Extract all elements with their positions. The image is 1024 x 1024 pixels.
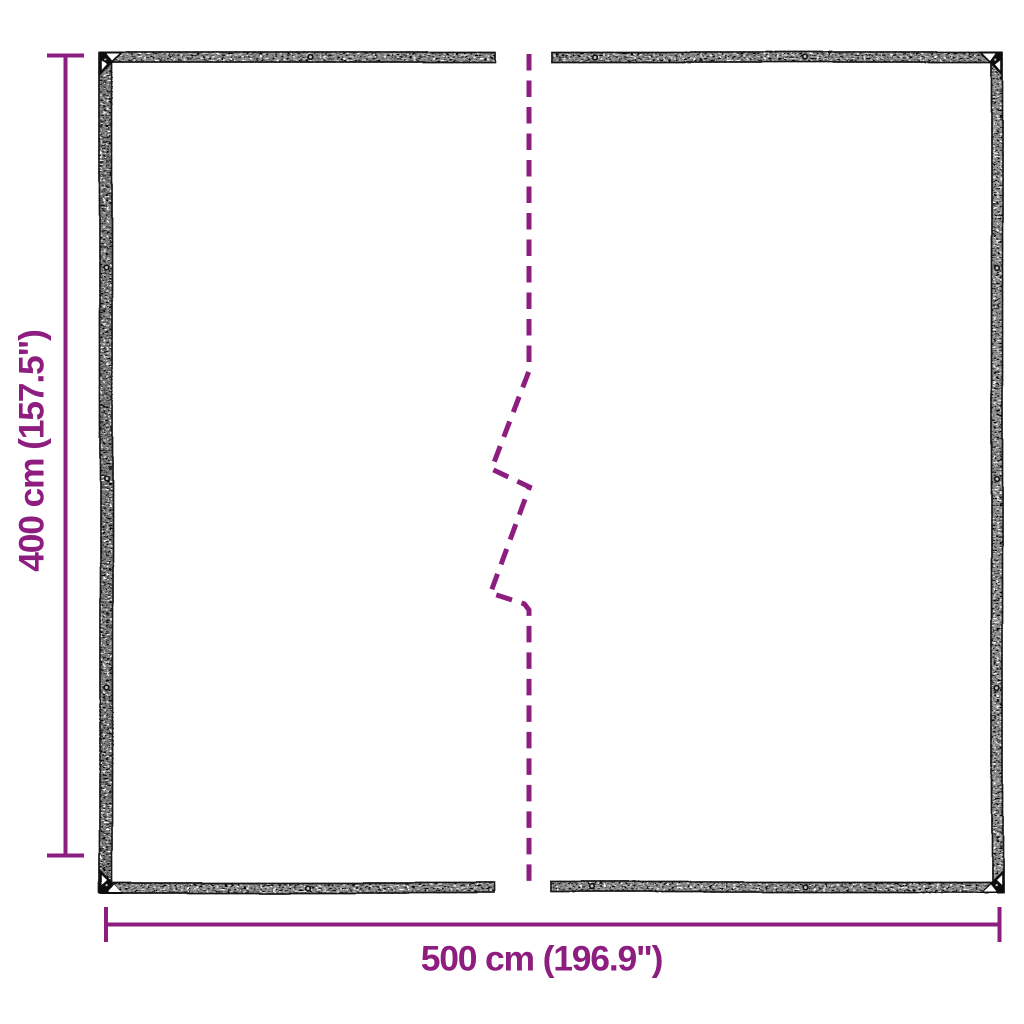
svg-text:500 cm (196.9"): 500 cm (196.9")	[421, 939, 663, 979]
svg-text:400 cm (157.5"): 400 cm (157.5")	[12, 330, 52, 572]
